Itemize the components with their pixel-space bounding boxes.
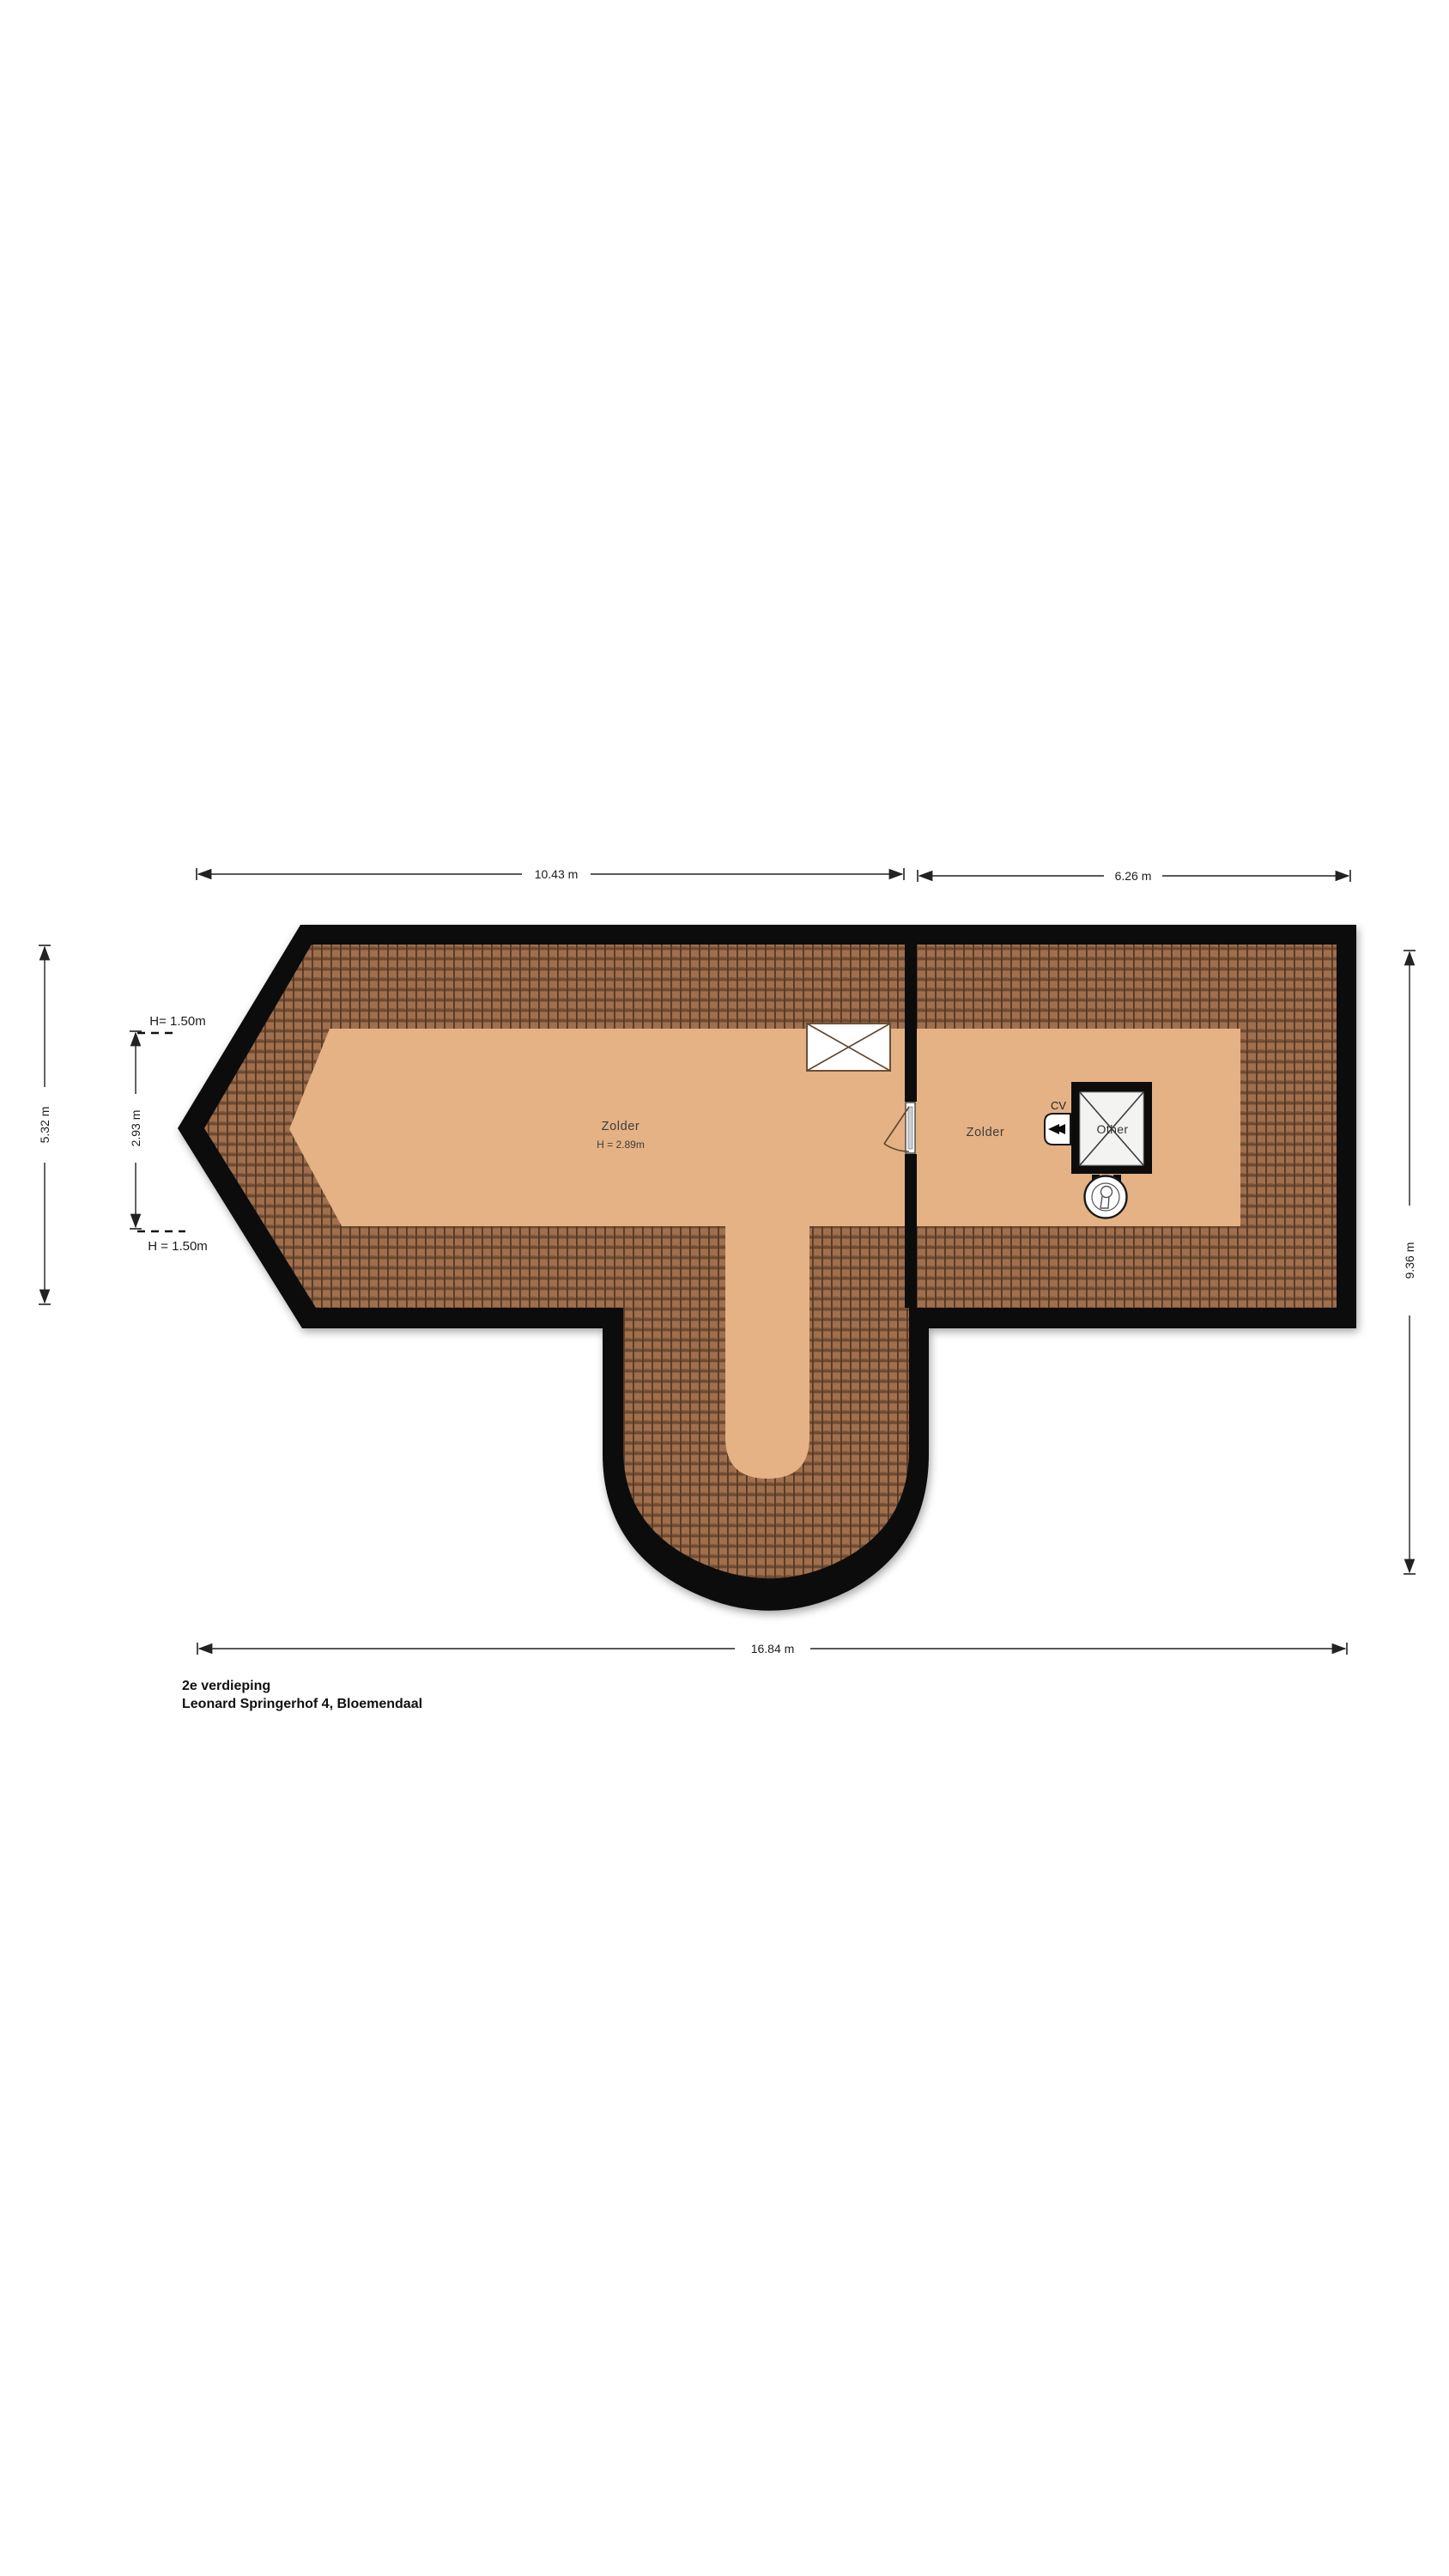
dimension-left-inner-label: 2.93 m (129, 1110, 142, 1147)
divider-wall-lower (905, 1153, 917, 1308)
dimension-left-inner: 2.93 m (129, 1031, 142, 1229)
headroom-bottom-label: H = 1.50m (148, 1239, 208, 1254)
roof-window-icon (807, 1024, 890, 1071)
shaft-box: Other (1071, 1082, 1152, 1174)
building: Other CV Zolder H = 2.89m Zolder (178, 925, 1356, 1611)
headroom-marker-top: H= 1.50m (137, 1014, 206, 1033)
room-height-label-left: H = 2.89m (597, 1139, 645, 1151)
mv-unit-icon (1085, 1175, 1127, 1218)
divider-wall-upper (905, 945, 917, 1102)
dimension-top-right-label: 6.26 m (1115, 869, 1152, 883)
dimension-top-left-label: 10.43 m (535, 867, 579, 881)
dimension-bottom-label: 16.84 m (751, 1642, 795, 1656)
room-label-right: Zolder (967, 1126, 1005, 1139)
dimension-top-left: 10.43 m (197, 867, 904, 881)
shaft-label: Other (1096, 1122, 1128, 1136)
dimension-right-label: 9.36 m (1403, 1242, 1416, 1279)
cv-label: CV (1051, 1099, 1066, 1112)
headroom-top-label: H= 1.50m (149, 1014, 205, 1029)
cv-boiler-icon (1045, 1114, 1070, 1145)
floorplan-canvas: Other CV Zolder H = 2.89m Zolder 10.43 m (0, 0, 1449, 2576)
address-line: Leonard Springerhof 4, Bloemendaal (182, 1697, 422, 1711)
dimension-bottom: 16.84 m (197, 1642, 1347, 1656)
dimension-right: 9.36 m (1403, 951, 1416, 1574)
floor-title: 2e verdieping (182, 1679, 270, 1693)
dimension-left-outer-label: 5.32 m (38, 1107, 52, 1144)
title-block: 2e verdieping Leonard Springerhof 4, Blo… (182, 1679, 422, 1711)
headroom-marker-bottom: H = 1.50m (137, 1231, 208, 1254)
dimension-left-outer: 5.32 m (38, 945, 52, 1304)
stairwell-floor (725, 1226, 809, 1479)
dimension-top-right: 6.26 m (918, 869, 1350, 883)
room-label-left: Zolder (602, 1120, 640, 1133)
